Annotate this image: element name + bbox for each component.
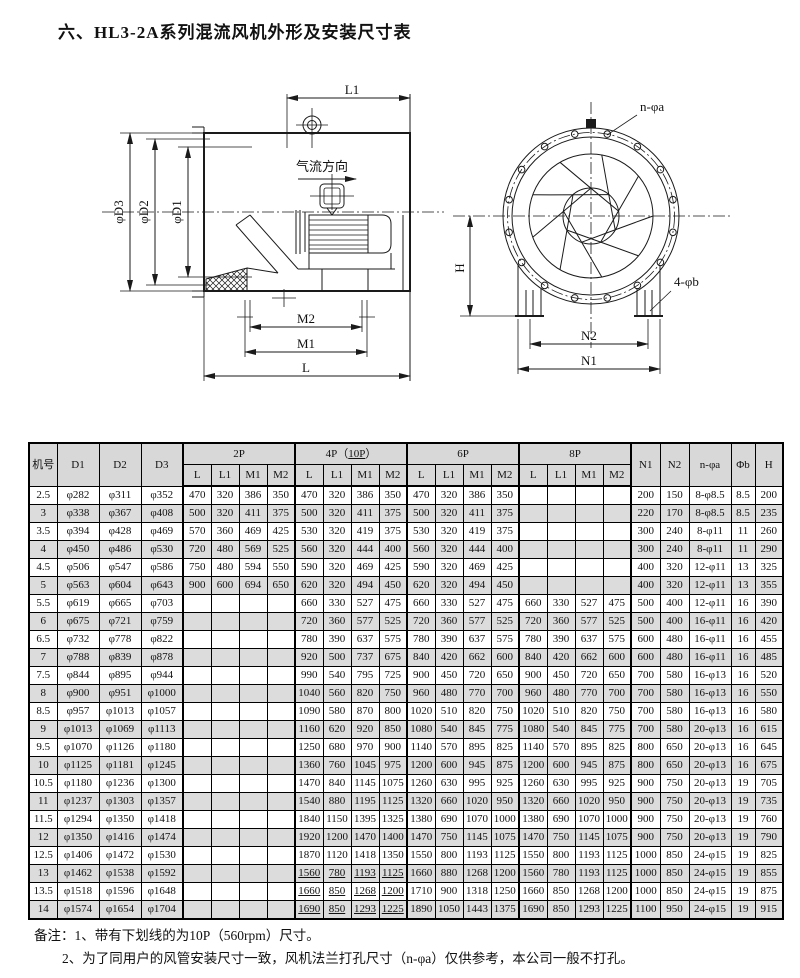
table-cell: 16 [731, 631, 755, 649]
table-cell: 580 [660, 667, 689, 685]
table-cell: 480 [211, 541, 239, 559]
table-cell: 800 [631, 739, 660, 757]
table-cell: 694 [239, 577, 267, 595]
table-cell: 705 [755, 775, 783, 793]
table-cell: 16 [731, 667, 755, 685]
table-cell [211, 901, 239, 920]
col-subheader: M1 [351, 465, 379, 487]
table-cell [519, 505, 547, 523]
table-row: 13.5φ1518φ1596φ1648166085012681200171090… [29, 883, 783, 901]
table-cell: 700 [631, 685, 660, 703]
table-cell: 19 [731, 865, 755, 883]
table-row: 13φ1462φ1538φ159215607801193112516608801… [29, 865, 783, 883]
table-cell: 825 [603, 739, 631, 757]
table-cell: 300 [631, 541, 660, 559]
table-cell: 1090 [295, 703, 323, 721]
table-cell: 850 [660, 883, 689, 901]
table-cell: 350 [267, 486, 295, 505]
table-cell: 637 [463, 631, 491, 649]
table-cell: 500 [323, 649, 351, 667]
col-header-tail-2: n-φa [689, 443, 731, 486]
table-cell: 580 [323, 703, 351, 721]
dim-label-l: L [302, 360, 310, 375]
table-cell: 420 [755, 613, 783, 631]
table-cell: 469 [351, 559, 379, 577]
table-cell: 400 [660, 613, 689, 631]
table-cell [183, 631, 211, 649]
table-cell: 19 [731, 829, 755, 847]
table-cell: 1225 [603, 901, 631, 920]
table-cell: 850 [660, 847, 689, 865]
table-cell: 13 [731, 559, 755, 577]
table-cell [211, 685, 239, 703]
table-cell: 330 [323, 595, 351, 613]
document-page: 六、HL3-2A系列混流风机外形及安装尺寸表 [0, 0, 800, 978]
table-row: 12φ1350φ1416φ147419201200147014001470750… [29, 829, 783, 847]
table-cell: 650 [660, 739, 689, 757]
fan-size-cell: 2.5 [29, 486, 57, 505]
table-cell: 1840 [295, 811, 323, 829]
table-cell: 850 [323, 883, 351, 901]
fan-size-cell: 7 [29, 649, 57, 667]
table-cell: φ408 [141, 505, 183, 523]
table-cell [267, 739, 295, 757]
table-cell: 1470 [351, 829, 379, 847]
table-cell: 240 [660, 523, 689, 541]
table-cell: 800 [547, 847, 575, 865]
table-cell: 662 [463, 649, 491, 667]
table-cell: φ586 [141, 559, 183, 577]
table-cell [519, 541, 547, 559]
table-cell: 575 [379, 631, 407, 649]
table-cell: 455 [755, 631, 783, 649]
table-cell: φ1125 [57, 757, 99, 775]
table-cell [267, 865, 295, 883]
table-cell [211, 739, 239, 757]
table-cell: 825 [755, 847, 783, 865]
table-cell: φ822 [141, 631, 183, 649]
table-cell: 1380 [407, 811, 435, 829]
table-cell: 660 [407, 595, 435, 613]
table-cell: 1250 [491, 883, 519, 901]
table-cell: 1325 [379, 811, 407, 829]
fan-size-cell: 13 [29, 865, 57, 883]
front-centerlines [453, 102, 732, 348]
table-cell [603, 577, 631, 595]
table-cell: φ352 [141, 486, 183, 505]
dim-label-d2: φD2 [136, 200, 151, 223]
table-cell: 320 [323, 577, 351, 595]
table-cell: 320 [323, 541, 351, 559]
table-row: 6.5φ732φ778φ8227803906375757803906375757… [29, 631, 783, 649]
table-cell: 19 [731, 811, 755, 829]
table-cell: φ1180 [141, 739, 183, 757]
table-cell [267, 667, 295, 685]
table-row: 7φ788φ839φ878920500737675840420662600840… [29, 649, 783, 667]
table-cell: φ844 [57, 667, 99, 685]
table-cell [267, 613, 295, 631]
table-cell: φ1418 [141, 811, 183, 829]
table-cell: 1145 [463, 829, 491, 847]
table-cell [267, 757, 295, 775]
table-cell: 600 [491, 649, 519, 667]
table-cell: φ1592 [141, 865, 183, 883]
table-cell: φ1518 [57, 883, 99, 901]
table-cell: 1200 [379, 883, 407, 901]
table-cell: 240 [660, 541, 689, 559]
table-cell [267, 847, 295, 865]
col-subheader: L1 [435, 465, 463, 487]
footnote-1: 备注：1、带有下划线的为10P（560rpm）尺寸。 [34, 924, 634, 947]
bolt-holes-group [506, 131, 676, 301]
table-cell: φ311 [99, 486, 141, 505]
table-cell [211, 793, 239, 811]
table-cell: 945 [575, 757, 603, 775]
table-cell: 720 [575, 667, 603, 685]
table-cell: 411 [239, 505, 267, 523]
table-cell: 900 [519, 667, 547, 685]
table-cell: 1145 [351, 775, 379, 793]
table-row: 5.5φ619φ665φ7036603305274756603305274756… [29, 595, 783, 613]
table-cell: 850 [323, 901, 351, 920]
table-cell: 11 [731, 523, 755, 541]
table-cell: 425 [267, 523, 295, 541]
table-cell: 325 [755, 559, 783, 577]
table-cell: 720 [183, 541, 211, 559]
table-cell: 900 [379, 739, 407, 757]
table-cell: 1660 [407, 865, 435, 883]
table-cell: 470 [295, 486, 323, 505]
table-cell: φ788 [57, 649, 99, 667]
table-cell: 970 [351, 739, 379, 757]
table-cell: 400 [379, 541, 407, 559]
table-cell: 1040 [295, 685, 323, 703]
table-cell [239, 793, 267, 811]
table-cell: 1293 [575, 901, 603, 920]
table-cell: 485 [755, 649, 783, 667]
fan-side-view-drawing: L1 气流方向 φD3 φD2 φD1 [102, 82, 444, 381]
table-cell: 1418 [351, 847, 379, 865]
table-cell: φ732 [57, 631, 99, 649]
table-cell: 1350 [379, 847, 407, 865]
table-cell: 950 [660, 901, 689, 920]
table-cell: φ1350 [99, 811, 141, 829]
table-cell: 915 [755, 901, 783, 920]
table-cell: φ1294 [57, 811, 99, 829]
table-cell [267, 883, 295, 901]
table-cell: 390 [435, 631, 463, 649]
table-cell: 850 [660, 865, 689, 883]
table-cell: 19 [731, 793, 755, 811]
table-cell [183, 865, 211, 883]
table-cell: 494 [463, 577, 491, 595]
table-cell [267, 631, 295, 649]
table-cell: 235 [755, 505, 783, 523]
table-cell [519, 577, 547, 595]
table-cell: 320 [435, 577, 463, 595]
table-cell: 750 [660, 775, 689, 793]
table-cell: 16-φ11 [689, 649, 731, 667]
table-cell: 260 [755, 523, 783, 541]
table-cell: 20-φ13 [689, 793, 731, 811]
eyebolt-icon [296, 108, 328, 148]
table-cell [239, 775, 267, 793]
table-cell: φ944 [141, 667, 183, 685]
table-cell: 530 [407, 523, 435, 541]
terminal-box [310, 174, 354, 215]
table-cell: 1660 [295, 883, 323, 901]
table-cell: 662 [575, 649, 603, 667]
table-cell: 700 [631, 721, 660, 739]
table-cell: 480 [547, 685, 575, 703]
table-cell: 820 [575, 703, 603, 721]
table-cell: 577 [575, 613, 603, 631]
mounting-feet [515, 265, 663, 316]
col-subheader: L [183, 465, 211, 487]
table-cell: 1268 [575, 883, 603, 901]
table-cell: 820 [351, 685, 379, 703]
table-cell [267, 649, 295, 667]
table-cell: 469 [463, 559, 491, 577]
table-cell [547, 523, 575, 541]
table-cell: 19 [731, 883, 755, 901]
table-cell: 650 [491, 667, 519, 685]
table-cell: 570 [183, 523, 211, 541]
table-cell: 360 [547, 613, 575, 631]
table-cell: φ1245 [141, 757, 183, 775]
table-cell [239, 811, 267, 829]
dim-label-d1: φD1 [169, 200, 184, 223]
table-cell [267, 703, 295, 721]
col-subheader: M2 [603, 465, 631, 487]
table-cell: 840 [407, 649, 435, 667]
dim-label-m1: M1 [297, 336, 315, 351]
table-cell [267, 775, 295, 793]
table-cell: φ1057 [141, 703, 183, 721]
table-cell [183, 847, 211, 865]
table-cell: φ1406 [57, 847, 99, 865]
table-cell [183, 739, 211, 757]
technical-drawings: L1 气流方向 φD3 φD2 φD1 [0, 58, 800, 390]
dim-label-n1: N1 [581, 353, 597, 368]
table-cell: 660 [519, 595, 547, 613]
table-cell: 780 [323, 865, 351, 883]
table-cell: 1125 [603, 847, 631, 865]
table-row: 11.5φ1294φ1350φ1418184011501395132513806… [29, 811, 783, 829]
col-subheader: L [295, 465, 323, 487]
table-cell: 1120 [323, 847, 351, 865]
table-cell: φ367 [99, 505, 141, 523]
table-cell: φ1236 [99, 775, 141, 793]
table-cell: 594 [239, 559, 267, 577]
table-cell: φ1000 [141, 685, 183, 703]
col-subheader: M1 [575, 465, 603, 487]
table-cell: 320 [435, 541, 463, 559]
table-cell [239, 883, 267, 901]
table-cell: φ469 [141, 523, 183, 541]
table-cell [211, 631, 239, 649]
table-cell: 510 [435, 703, 463, 721]
col-group-header-1: 4P（10P） [295, 443, 407, 465]
table-cell: 20-φ13 [689, 721, 731, 739]
table-cell: φ1474 [141, 829, 183, 847]
col-header-d1: D1 [57, 443, 99, 486]
table-body: 2.5φ282φ311φ3524703203863504703203863504… [29, 486, 783, 919]
col-subheader: M2 [379, 465, 407, 487]
table-cell: 1200 [603, 883, 631, 901]
table-cell: 500 [631, 613, 660, 631]
table-cell: 1125 [379, 865, 407, 883]
table-cell: 750 [183, 559, 211, 577]
table-cell: 737 [351, 649, 379, 667]
table-cell [239, 631, 267, 649]
col-header-d3: D3 [141, 443, 183, 486]
fan-size-cell: 13.5 [29, 883, 57, 901]
table-cell: 1200 [407, 757, 435, 775]
table-cell: 1125 [491, 847, 519, 865]
table-cell: 450 [491, 577, 519, 595]
table-cell: 725 [379, 667, 407, 685]
table-cell: 8-φ11 [689, 523, 731, 541]
table-cell: 475 [491, 595, 519, 613]
table-cell: 290 [755, 541, 783, 559]
table-cell: 600 [547, 757, 575, 775]
table-cell: φ675 [57, 613, 99, 631]
table-cell: 386 [351, 486, 379, 505]
table-cell: 900 [407, 667, 435, 685]
table-cell: 580 [755, 703, 783, 721]
table-cell: 1145 [575, 829, 603, 847]
table-cell: 895 [463, 739, 491, 757]
table-cell: 1200 [491, 865, 519, 883]
table-cell: φ895 [99, 667, 141, 685]
table-cell [603, 505, 631, 523]
table-cell: 870 [351, 703, 379, 721]
table-cell: φ665 [99, 595, 141, 613]
table-cell: 1200 [323, 829, 351, 847]
airflow-direction-label: 气流方向 [296, 159, 348, 174]
table-cell: 550 [267, 559, 295, 577]
table-cell: 20-φ13 [689, 775, 731, 793]
table-cell: 525 [491, 613, 519, 631]
table-cell: 600 [631, 649, 660, 667]
table-cell: 875 [491, 757, 519, 775]
table-cell: 577 [351, 613, 379, 631]
table-cell: 13 [731, 577, 755, 595]
table-cell: 425 [491, 559, 519, 577]
table-cell: 1470 [519, 829, 547, 847]
table-cell: 400 [660, 595, 689, 613]
table-cell: 925 [603, 775, 631, 793]
table-cell: 840 [323, 775, 351, 793]
table-cell: 900 [435, 883, 463, 901]
table-cell: 650 [603, 667, 631, 685]
table-cell: 1020 [519, 703, 547, 721]
table-cell: 320 [211, 505, 239, 523]
table-cell: 900 [631, 793, 660, 811]
table-cell: 16 [731, 703, 755, 721]
table-head: 机号D1D2D32P4P（10P）6P8PN1N2n-φaΦbHLL1M1M2L… [29, 443, 783, 486]
table-cell: 900 [631, 775, 660, 793]
fan-size-cell: 9 [29, 721, 57, 739]
table-cell [547, 559, 575, 577]
fan-size-cell: 3 [29, 505, 57, 523]
table-cell [239, 613, 267, 631]
table-cell: 16 [731, 613, 755, 631]
table-cell: 990 [295, 667, 323, 685]
table-cell: φ1069 [99, 721, 141, 739]
table-cell [603, 523, 631, 541]
table-cell: 690 [547, 811, 575, 829]
table-cell: 1150 [323, 811, 351, 829]
fan-size-cell: 11 [29, 793, 57, 811]
table-cell: 350 [491, 486, 519, 505]
table-cell: 375 [379, 505, 407, 523]
table-cell: 1195 [351, 793, 379, 811]
table-cell: 480 [660, 631, 689, 649]
table-cell: 525 [267, 541, 295, 559]
table-cell: 925 [491, 775, 519, 793]
table-cell: 24-φ15 [689, 883, 731, 901]
table-cell [183, 685, 211, 703]
table-cell [183, 667, 211, 685]
col-subheader: M1 [239, 465, 267, 487]
table-cell: 360 [435, 613, 463, 631]
table-cell: 400 [631, 559, 660, 577]
table-cell [211, 829, 239, 847]
table-cell: 419 [351, 523, 379, 541]
table-cell: 895 [575, 739, 603, 757]
table-cell: 24-φ15 [689, 847, 731, 865]
table-cell: 750 [379, 685, 407, 703]
table-cell: 1225 [379, 901, 407, 920]
table-cell: 12-φ11 [689, 559, 731, 577]
table-row: 12.5φ1406φ1472φ1530187011201418135015508… [29, 847, 783, 865]
table-cell: 620 [323, 721, 351, 739]
table-cell: 1193 [463, 847, 491, 865]
table-cell: φ1596 [99, 883, 141, 901]
table-cell: 1160 [295, 721, 323, 739]
table-cell [547, 577, 575, 595]
table-cell: 16 [731, 739, 755, 757]
table-cell: 850 [547, 901, 575, 920]
table-cell [211, 721, 239, 739]
table-cell: φ394 [57, 523, 99, 541]
table-cell: 475 [603, 595, 631, 613]
table-cell: 875 [603, 757, 631, 775]
table-cell: 386 [239, 486, 267, 505]
table-cell: 675 [379, 649, 407, 667]
impeller-blades-group [524, 149, 656, 281]
table-cell: 419 [463, 523, 491, 541]
table-cell: φ1538 [99, 865, 141, 883]
fan-size-cell: 14 [29, 901, 57, 920]
fan-size-cell: 5.5 [29, 595, 57, 613]
table-cell: 470 [407, 486, 435, 505]
bolt-holes-leader [607, 115, 637, 135]
table-cell: 620 [407, 577, 435, 595]
table-cell: 16 [731, 757, 755, 775]
table-cell: 1020 [463, 793, 491, 811]
table-cell: 16 [731, 649, 755, 667]
table-cell: 500 [183, 505, 211, 523]
table-cell: 1140 [407, 739, 435, 757]
table-cell: 660 [547, 793, 575, 811]
table-cell: 1360 [295, 757, 323, 775]
table-cell: 525 [603, 613, 631, 631]
col-header-tail-0: N1 [631, 443, 660, 486]
table-cell: 570 [547, 739, 575, 757]
